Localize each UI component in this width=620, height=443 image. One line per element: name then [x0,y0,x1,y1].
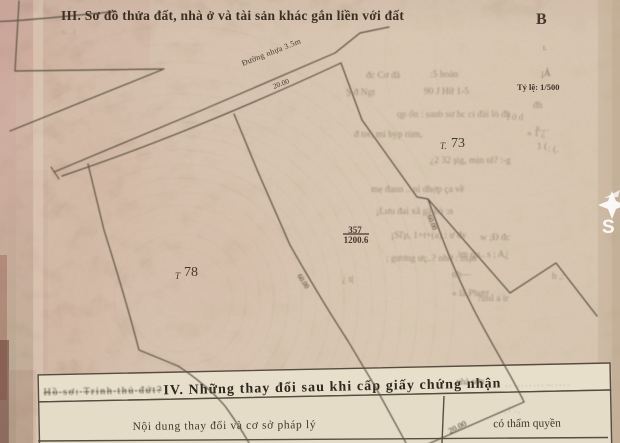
svg-text:1200.6: 1200.6 [344,235,369,245]
svg-text:nh—: nh— [452,270,472,280]
svg-text:đ trè, mí byp rùm,: đ trè, mí byp rùm, [354,130,423,140]
svg-text:78: 78 [184,265,198,280]
svg-text:nhà sơn: nhà sơn [456,376,485,387]
svg-text:b ,:: b ,: [552,272,564,282]
svg-text:l ờ d: l ờ d [507,112,524,122]
svg-text:¡Sĩ'ρ, 1+t+(a) : ư đv: ¡Sĩ'ρ, 1+t+(a) : ư đv [391,230,467,241]
svg-text:đh: đh [533,101,543,111]
svg-text:¿2 32 şig, mịn ul? :-g: ¿2 32 şig, mịn ul? :-g [430,156,511,166]
svg-text:T.: T. [440,141,447,151]
svg-text:¿ t(: ¿ t( [342,274,354,285]
svg-text:mẹ đann .. ni dhợp ça về: mẹ đann .. ni dhợp ça về [371,184,464,195]
svg-text:¸ .¸ l '. ˛: ¸ .¸ l '. ˛ [497,405,521,414]
svg-text::5 hoàn: :5 hoàn [430,70,458,80]
svg-text:x . .1: x . .1 [62,28,77,36]
svg-text:¡Lưu đai xã gã hò :n: ¡Lưu đai xã gã hò :n [376,207,453,217]
svg-text:73: 73 [451,136,465,151]
svg-text:đc Cơ đã: đc Cơ đã [366,71,401,81]
svg-text:im qu.. s ; A¿: im qu.. s ; A¿ [458,250,509,260]
svg-text:S: S [602,217,615,238]
svg-text:Ş đ Ngt: Ş đ Ngt [346,88,375,98]
svg-text:¡Á: ¡Á [541,68,551,78]
svg-text:?ınıl a ir: ?ınıl a ir [477,294,509,304]
svg-text:B: B [536,11,547,28]
svg-text:có thẩm quyền: có thẩm quyền [493,417,561,431]
svg-text:w ;Ð đc: w ;Ð đc [480,233,510,243]
svg-text:s…: s… [536,124,549,134]
svg-text:: (.: : (. [548,144,559,155]
svg-text:qp ổn : sanb sư hc ci đài lò đ: qp ổn : sanb sư hc ci đài lò đh [397,109,511,120]
svg-text:90 J Hữ 1-5: 90 J Hữ 1-5 [424,87,469,97]
svg-text:1 (: 1 ( [537,141,547,152]
svg-text:Tỷ lệ: 1/500: Tỷ lệ: 1/500 [517,82,560,92]
svg-text:t.: t. [543,44,547,52]
svg-text:Nội dung thay đổi và cơ sở phá: Nội dung thay đổi và cơ sở pháp lý [132,418,315,433]
